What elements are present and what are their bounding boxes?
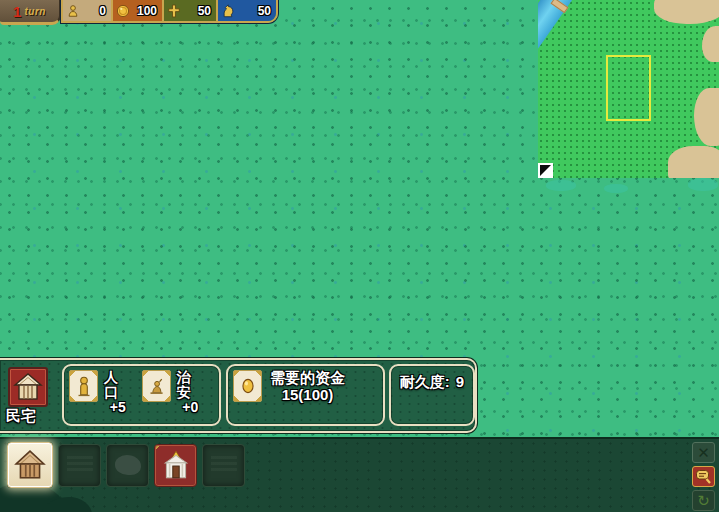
- resource-faith: 50: [164, 0, 218, 21]
- rock-icon: [115, 455, 141, 475]
- minimap-terrain-patch: [694, 88, 719, 146]
- minimap-viewport-rect[interactable]: [606, 55, 651, 121]
- resource-value: 0: [99, 4, 106, 18]
- security-card: [142, 370, 171, 402]
- minimap-terrain-patch: [668, 146, 719, 178]
- church-icon: [159, 448, 193, 482]
- cost-subpanel: 需要的资金 15(100): [226, 364, 385, 426]
- cross-icon: [167, 4, 181, 18]
- field-patch: [546, 180, 576, 191]
- building-info-panel: 民宅 人口 +5: [0, 358, 477, 433]
- inspect-bubble-icon: [695, 468, 712, 485]
- field-patch: [604, 184, 628, 193]
- stat-value: +5: [110, 400, 126, 415]
- durability-label: 耐久度:: [400, 373, 450, 392]
- minimap-terrain-patch: [654, 0, 719, 24]
- slot-church[interactable]: [154, 444, 197, 487]
- building-icon: [67, 456, 93, 474]
- coin-icon: [239, 375, 257, 397]
- game-screen: 1 turn 0 100 50: [0, 0, 719, 512]
- house-icon: [12, 372, 44, 402]
- building-icon: [211, 456, 237, 474]
- cost-card: [233, 370, 262, 402]
- building-thumbnail: [8, 367, 48, 407]
- stat-value: +0: [182, 400, 198, 415]
- cost-text: 需要的资金 15(100): [270, 370, 345, 403]
- knight-icon: [221, 4, 235, 18]
- resource-gold: 100: [113, 0, 164, 21]
- slot-building-locked[interactable]: [202, 444, 245, 487]
- inspect-button[interactable]: [692, 466, 715, 487]
- field-patch: [688, 178, 718, 191]
- minimap-terrain-patch: [702, 26, 719, 62]
- resource-value: 50: [198, 4, 211, 18]
- security-stat: 治安 +0: [177, 370, 205, 415]
- rotate-button[interactable]: ↻: [692, 490, 715, 511]
- house-icon: [13, 448, 47, 482]
- cost-value: 15(100): [282, 386, 334, 403]
- resource-population: 0: [63, 0, 113, 21]
- cost-label: 需要的资金: [270, 370, 345, 386]
- slot-rock-locked[interactable]: [106, 444, 149, 487]
- rotate-icon: ↻: [697, 493, 710, 508]
- resource-value: 100: [137, 4, 157, 18]
- stat-label: 治安: [177, 370, 205, 400]
- person-icon: [66, 4, 80, 18]
- security-icon: [147, 375, 165, 397]
- resource-military: 50: [218, 0, 276, 21]
- minimap[interactable]: [538, 0, 719, 178]
- resource-value: 50: [258, 4, 271, 18]
- resize-handle-icon[interactable]: [538, 163, 553, 178]
- building-slots: [7, 442, 245, 488]
- stat-label: 人口: [104, 370, 132, 400]
- stats-subpanel: 人口 +5 治安 +0: [62, 364, 221, 426]
- toolbar-side-buttons: ✕ ↻: [692, 442, 715, 512]
- building-name: 民宅: [6, 407, 36, 426]
- build-toolbar: ✕ ↻: [0, 437, 719, 512]
- close-button[interactable]: ✕: [692, 442, 715, 463]
- turn-counter: 1 turn: [0, 0, 61, 25]
- close-x-icon: ✕: [697, 445, 710, 460]
- turn-label: turn: [24, 6, 45, 17]
- slot-house[interactable]: [7, 442, 53, 488]
- coin-icon: [116, 4, 130, 18]
- population-card: [69, 370, 98, 402]
- person-icon: [75, 375, 93, 397]
- resource-bar: 0 100 50 50: [61, 0, 278, 23]
- durability-value: 9: [456, 373, 464, 390]
- durability-subpanel: 耐久度: 9: [389, 364, 475, 426]
- slot-building-locked[interactable]: [58, 444, 101, 487]
- population-stat: 人口 +5: [104, 370, 132, 415]
- turn-number: 1: [13, 3, 21, 20]
